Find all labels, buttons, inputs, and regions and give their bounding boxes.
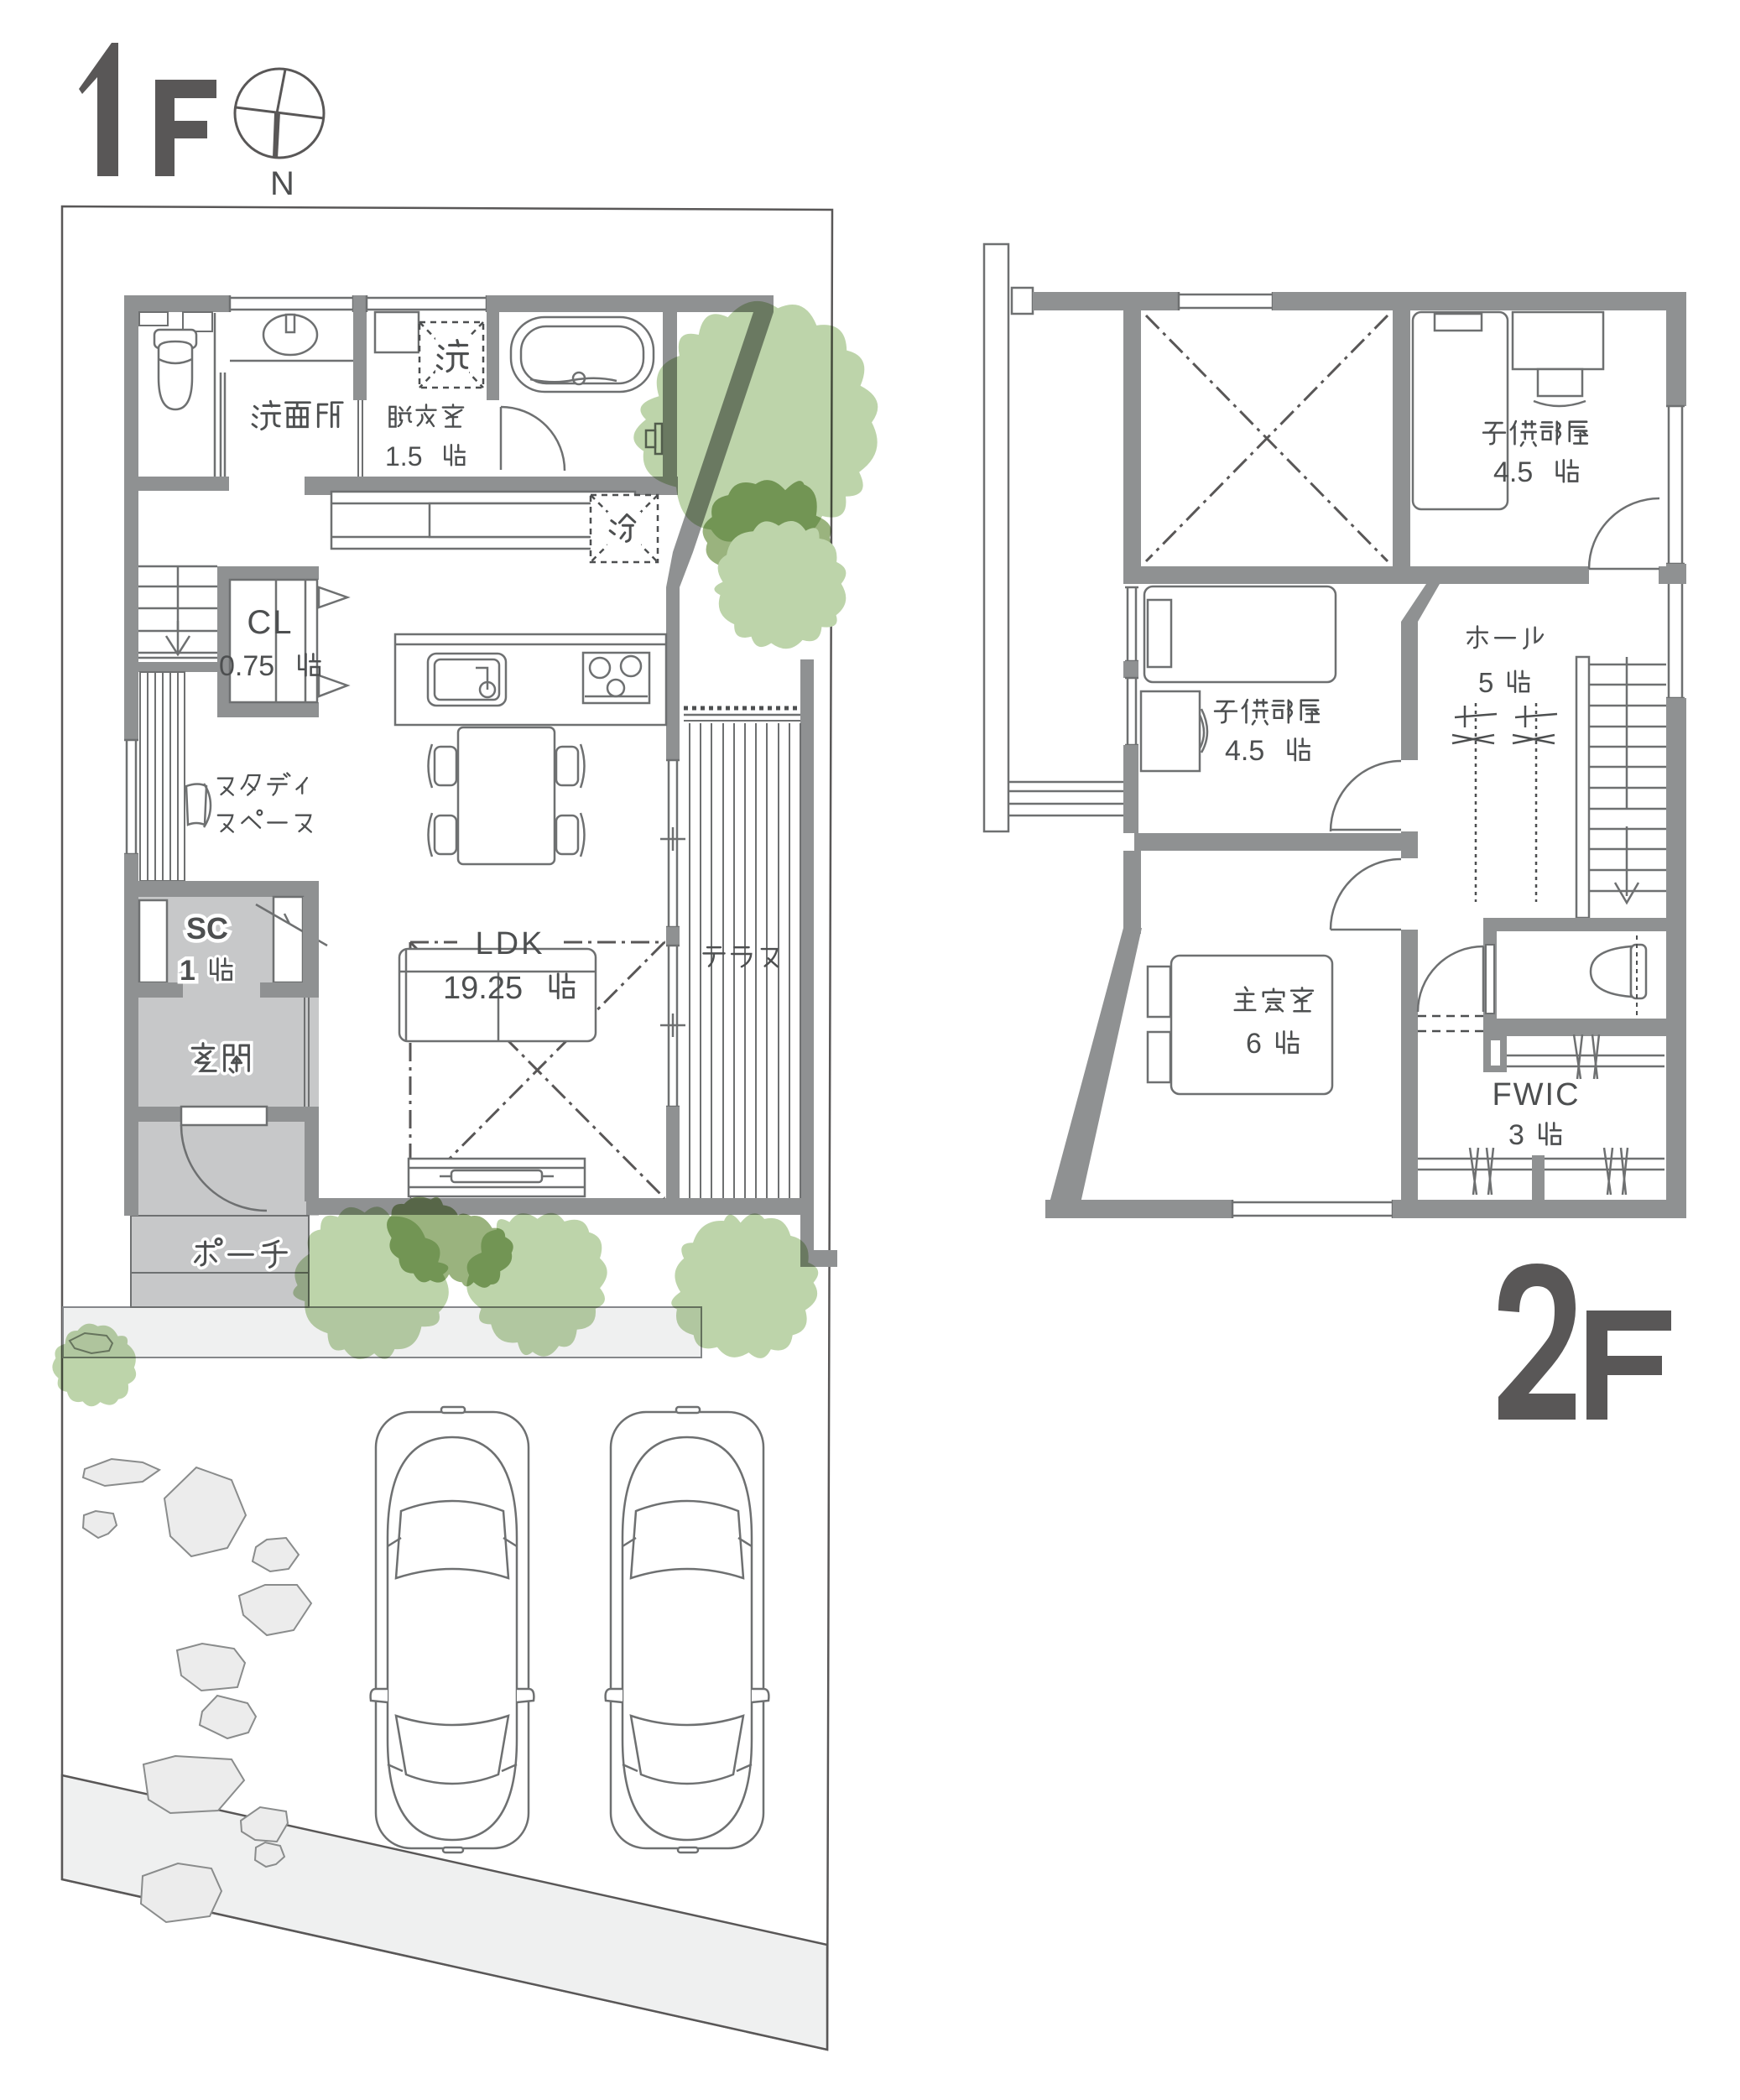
svg-text:SC: SC [186, 911, 228, 946]
svg-text:CL: CL [247, 604, 293, 641]
svg-text:LDK: LDK [476, 926, 545, 961]
svg-text:1: 1 [180, 955, 195, 987]
svg-text:4.5: 4.5 [1225, 735, 1264, 767]
svg-text:19.25: 19.25 [443, 971, 523, 1006]
svg-text:3: 3 [1508, 1119, 1524, 1151]
svg-text:0.75: 0.75 [219, 650, 274, 682]
svg-text:FWIC: FWIC [1492, 1077, 1580, 1113]
svg-text:N: N [270, 165, 294, 202]
svg-text:5: 5 [1478, 667, 1493, 698]
svg-text:6: 6 [1246, 1028, 1262, 1060]
svg-text:1.5: 1.5 [385, 441, 422, 472]
svg-text:4.5: 4.5 [1493, 456, 1533, 488]
